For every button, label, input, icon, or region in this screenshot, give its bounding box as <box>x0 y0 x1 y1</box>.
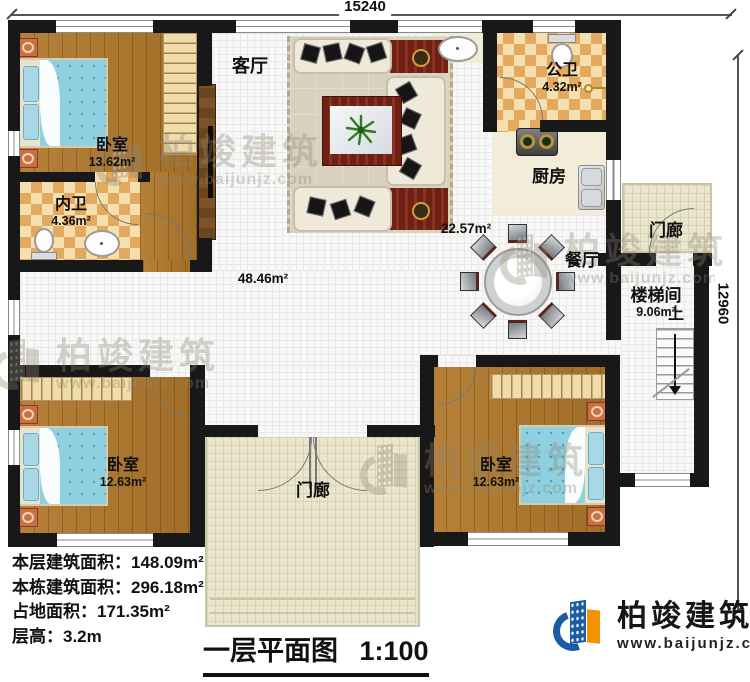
toilet-tank <box>548 34 576 43</box>
sink-basin <box>581 189 602 207</box>
room-label-inner-bath: 内卫4.36m² <box>51 196 91 228</box>
nightstand <box>587 402 607 421</box>
bed-pillow <box>23 433 39 466</box>
wall <box>605 355 620 532</box>
sofa-pillow <box>322 42 342 62</box>
floor-plan-canvas: 柏竣建筑 www.baijunjz.com 柏竣建筑 www.baijunjz.… <box>0 0 750 682</box>
bedroom-tl-doorway <box>143 260 190 272</box>
watermark: 柏竣建筑 www.baijunjz.com <box>0 337 220 395</box>
dining-chair <box>460 272 479 291</box>
dimension-right-value: 12960 <box>715 274 732 334</box>
room-label-bedroom-bl: 卧室12.63m² <box>100 457 147 489</box>
window <box>8 300 20 335</box>
stairs-up-label: 上 <box>668 306 684 324</box>
room-label-porch-bottom: 门廊 <box>296 481 330 500</box>
window <box>398 20 482 33</box>
porch-door-threshold <box>258 425 367 437</box>
wall <box>8 533 57 547</box>
room-label-public-bath: 公卫4.32m² <box>542 62 582 94</box>
area-label-dining: 22.57m² <box>441 221 491 236</box>
window <box>236 20 350 33</box>
wall <box>8 260 143 272</box>
brand-name: 柏竣建筑 <box>617 602 750 632</box>
brand-url: www.baijunjz.com <box>617 635 750 652</box>
wall <box>8 20 20 131</box>
watermark-logo-icon <box>0 337 46 395</box>
wall <box>540 120 610 132</box>
info-land-area: 占地面积：171.35m² <box>12 600 204 625</box>
watermark-logo-icon <box>360 442 414 500</box>
bedroom-br-doorway <box>438 355 476 367</box>
nightstand <box>18 149 38 168</box>
nightstand <box>18 38 38 57</box>
window <box>635 473 690 487</box>
sink-basin <box>581 168 602 186</box>
info-building-area: 本栋建筑面积：296.18m² <box>12 576 204 601</box>
porch-step-line <box>210 598 415 600</box>
ceiling-light <box>412 49 430 67</box>
room-label-porch-right: 门廊 <box>649 221 683 240</box>
ceiling-light <box>412 202 430 220</box>
wall <box>476 355 620 367</box>
wall <box>483 20 497 132</box>
watermark-url: www.baijunjz.com <box>56 374 220 395</box>
watermark-name: 柏竣建筑 <box>56 338 220 374</box>
brand-logo: 柏竣建筑 www.baijunjz.com <box>553 598 750 656</box>
window <box>8 131 20 156</box>
room-label-bedroom-tl: 卧室13.62m² <box>89 137 136 169</box>
bed-pillow <box>23 104 39 140</box>
nightstand <box>587 507 607 526</box>
dining-chair <box>508 320 527 339</box>
brand-logo-icon <box>553 598 607 656</box>
wall <box>606 20 621 160</box>
wardrobe <box>490 374 607 399</box>
porch-step-line <box>210 612 415 614</box>
corridor-floor <box>202 365 420 425</box>
basin-drain <box>456 47 459 50</box>
window <box>468 532 568 546</box>
bed-pillow <box>23 66 39 102</box>
wall <box>190 260 212 272</box>
bed-pillow <box>23 468 39 501</box>
room-label-bedroom-br: 卧室12.63m² <box>473 457 520 489</box>
info-storey-height: 层高：3.2m <box>12 625 204 650</box>
plan-title: 一层平面图 1:100 <box>203 629 429 677</box>
dimension-top-value: 15240 <box>339 0 391 16</box>
sofa-pillow <box>306 196 326 216</box>
room-label-dining: 餐厅 <box>565 251 599 270</box>
burner-icon <box>520 134 535 149</box>
watermark-url: www.baijunjz.com <box>159 170 323 191</box>
area-label-hall: 48.46m² <box>238 271 288 286</box>
room-label-kitchen: 厨房 <box>532 167 566 186</box>
bed-pillow <box>588 432 604 465</box>
watermark: 柏竣建筑 www.baijunjz.com <box>500 232 728 290</box>
watermark-logo-icon <box>500 232 554 290</box>
window <box>533 20 575 33</box>
plan-title-scale: 1:100 <box>360 636 429 666</box>
plant-icon <box>344 113 378 147</box>
wall-lamp-icon <box>584 84 593 93</box>
stairs-arrow-head <box>669 386 681 395</box>
info-floor-area: 本层建筑面积：148.09m² <box>12 551 204 576</box>
burner-icon <box>539 134 554 149</box>
wall <box>690 473 709 487</box>
wall <box>153 20 236 33</box>
window <box>8 430 20 465</box>
info-block: 本层建筑面积：148.09m² 本栋建筑面积：296.18m² 占地面积：171… <box>12 551 204 649</box>
wall <box>568 532 620 546</box>
nightstand <box>18 405 38 424</box>
wall <box>8 172 95 182</box>
plan-title-text: 一层平面图 <box>203 636 338 666</box>
toilet-icon <box>34 228 54 253</box>
dimension-line-right <box>737 55 739 613</box>
bed-pillow <box>588 467 604 500</box>
sink-drain <box>100 242 103 245</box>
room-label-living: 客厅 <box>232 56 268 76</box>
window <box>606 160 621 200</box>
toilet-tank <box>31 252 57 260</box>
window <box>57 533 153 547</box>
wall <box>350 20 398 33</box>
window <box>56 20 153 33</box>
nightstand <box>18 508 38 527</box>
watermark-name: 柏竣建筑 <box>159 134 323 170</box>
